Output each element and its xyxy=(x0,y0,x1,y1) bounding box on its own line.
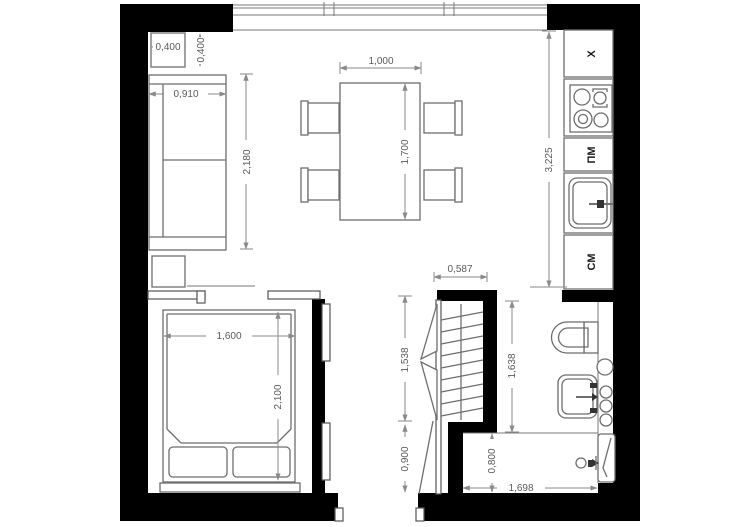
hanger-lines xyxy=(441,312,483,416)
dim-closet-d: 1,538 xyxy=(400,347,411,372)
dim-bathtub-w: 0,800 xyxy=(487,448,498,473)
dim-entry-hall-d: 0,900 xyxy=(400,446,411,471)
dining-chair xyxy=(301,101,339,135)
dim-bed-w: 1,600 xyxy=(216,331,241,342)
toilet-icon xyxy=(551,322,598,353)
floor-plan-drawing: X ПМ СМ xyxy=(0,0,736,527)
washing-machine-label: СМ xyxy=(586,254,598,271)
wall-segment xyxy=(120,4,148,521)
kitchen-sink-icon xyxy=(569,178,613,228)
bathtub-faucet-icon xyxy=(576,456,599,470)
dim-closet-w: 0,587 xyxy=(447,264,472,275)
dining-chair xyxy=(424,168,462,202)
wall-below-closet xyxy=(448,422,463,494)
bed-bench xyxy=(160,483,300,492)
bathroom-sink-icon xyxy=(558,375,598,418)
dim-bathroom-d: 1,638 xyxy=(507,353,518,378)
dishwasher-label: ПМ xyxy=(586,146,598,163)
plumbing-outlets xyxy=(600,386,612,426)
wall-segment xyxy=(598,483,640,521)
dim-side-table-w: 0,400 xyxy=(155,42,180,53)
dim-bed-l: 2,100 xyxy=(273,384,284,409)
pillow xyxy=(169,447,227,477)
sofa xyxy=(149,75,226,250)
floor-plan: X ПМ СМ xyxy=(0,0,736,527)
wall-bathroom-top xyxy=(562,290,613,302)
door-leaf xyxy=(419,421,433,494)
fridge-label: X xyxy=(586,50,598,58)
water-heater-icon xyxy=(597,359,613,375)
dim-sofa-l: 2,180 xyxy=(242,149,253,174)
dim-kitchen-run: 3,225 xyxy=(544,147,555,172)
bifold-door xyxy=(421,362,437,420)
door-jamb xyxy=(416,508,424,521)
door-jamb xyxy=(335,508,343,521)
wall-segment xyxy=(120,4,233,32)
dim-bathroom-w: 1,698 xyxy=(508,483,533,494)
bathtub-panel xyxy=(598,434,615,482)
nightstand xyxy=(152,256,185,287)
dim-sofa-w: 0,910 xyxy=(173,89,198,100)
window-mullion xyxy=(324,2,454,16)
wall-segment xyxy=(120,493,338,521)
dim-side-table-d: 0,400 xyxy=(196,37,207,62)
bifold-door xyxy=(421,304,437,359)
dim-dining-l: 1,700 xyxy=(400,139,411,164)
bedroom-partition xyxy=(148,291,320,303)
wall-segment xyxy=(613,4,640,521)
pillow xyxy=(233,447,290,477)
dining-chair xyxy=(424,101,462,135)
dining-chair xyxy=(301,168,339,202)
dim-dining-w: 1,000 xyxy=(368,56,393,67)
wall-closet-right xyxy=(483,290,497,433)
window xyxy=(233,2,547,30)
